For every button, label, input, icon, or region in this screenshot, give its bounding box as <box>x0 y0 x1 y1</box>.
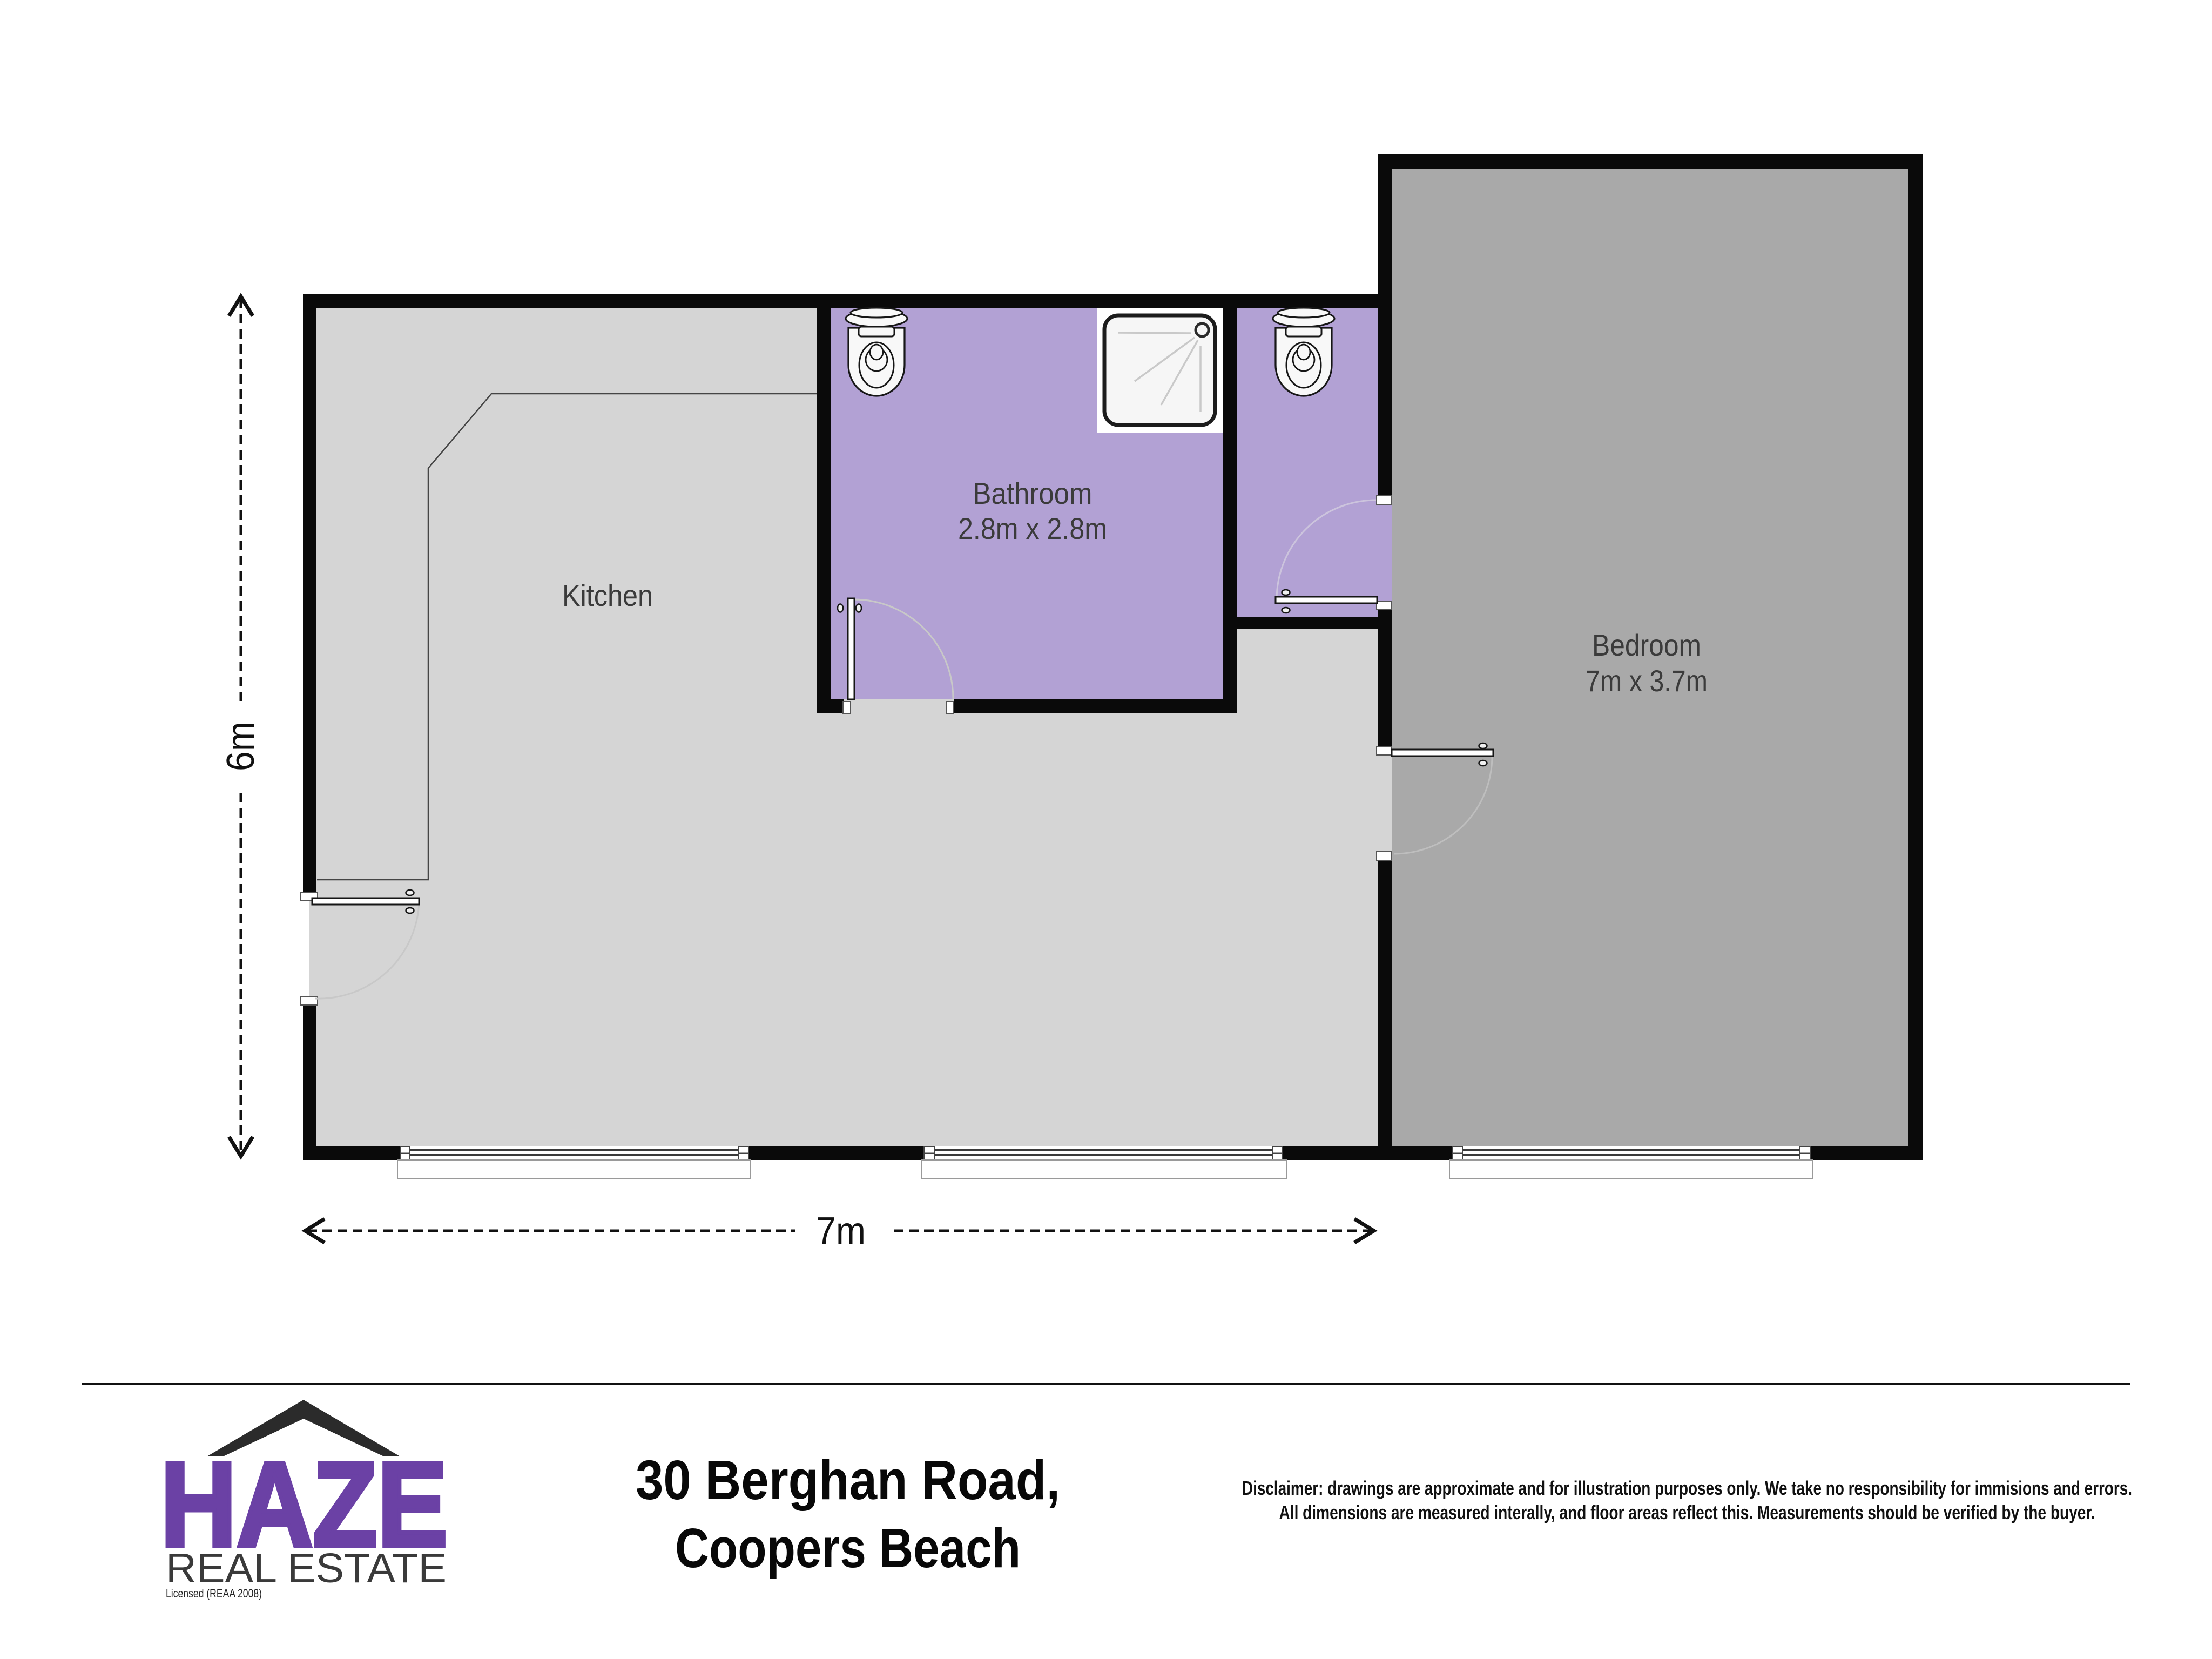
svg-text:Licensed (REAA 2008): Licensed (REAA 2008) <box>166 1587 262 1600</box>
svg-text:Bathroom: Bathroom <box>973 476 1092 510</box>
svg-text:Disclaimer: drawings are appro: Disclaimer: drawings are approximate and… <box>1242 1477 2132 1499</box>
svg-text:Coopers Beach: Coopers Beach <box>675 1517 1021 1579</box>
svg-text:Bedroom: Bedroom <box>1592 628 1701 662</box>
svg-text:7m: 7m <box>816 1210 866 1253</box>
svg-text:REAL ESTATE: REAL ESTATE <box>166 1545 447 1591</box>
svg-text:6m: 6m <box>219 721 262 771</box>
svg-text:2.8m x 2.8m: 2.8m x 2.8m <box>958 511 1107 545</box>
svg-text:Kitchen: Kitchen <box>562 578 653 612</box>
svg-text:All dimensions are measured in: All dimensions are measured interally, a… <box>1279 1501 2095 1523</box>
svg-text:7m x 3.7m: 7m x 3.7m <box>1586 664 1708 698</box>
svg-text:30 Berghan Road,: 30 Berghan Road, <box>636 1449 1060 1511</box>
